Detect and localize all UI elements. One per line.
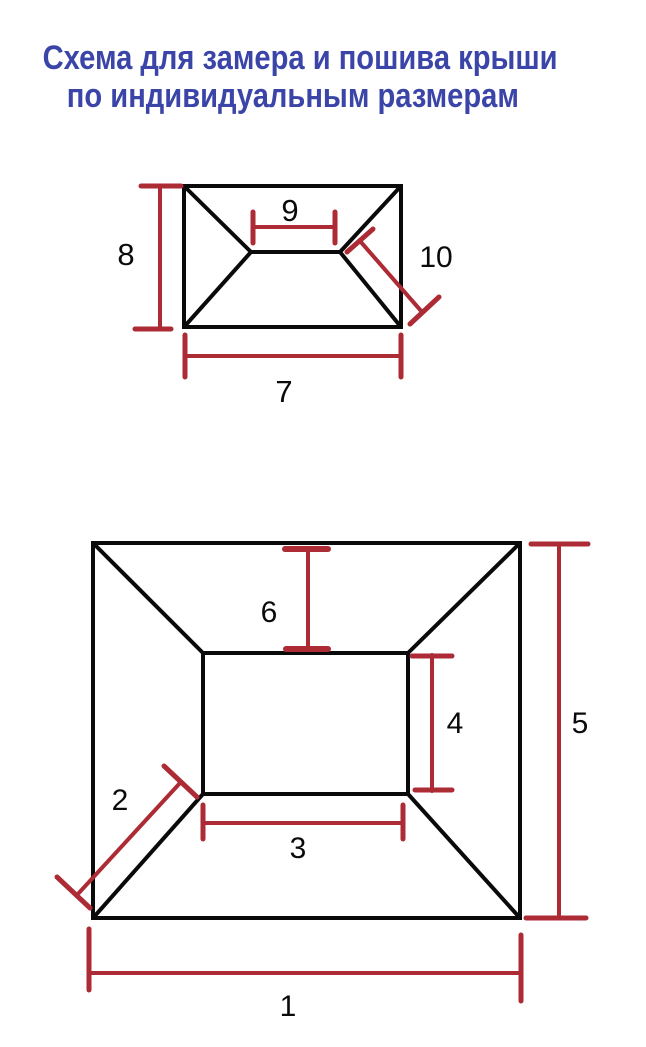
svg-text:9: 9 [281, 193, 298, 228]
svg-text:2: 2 [112, 784, 129, 817]
svg-text:7: 7 [275, 374, 292, 409]
svg-text:10: 10 [419, 241, 452, 274]
svg-text:8: 8 [117, 237, 134, 272]
svg-text:6: 6 [261, 596, 278, 629]
svg-text:4: 4 [447, 707, 464, 740]
svg-text:1: 1 [280, 990, 297, 1023]
svg-text:3: 3 [290, 832, 307, 865]
svg-text:5: 5 [572, 707, 589, 740]
